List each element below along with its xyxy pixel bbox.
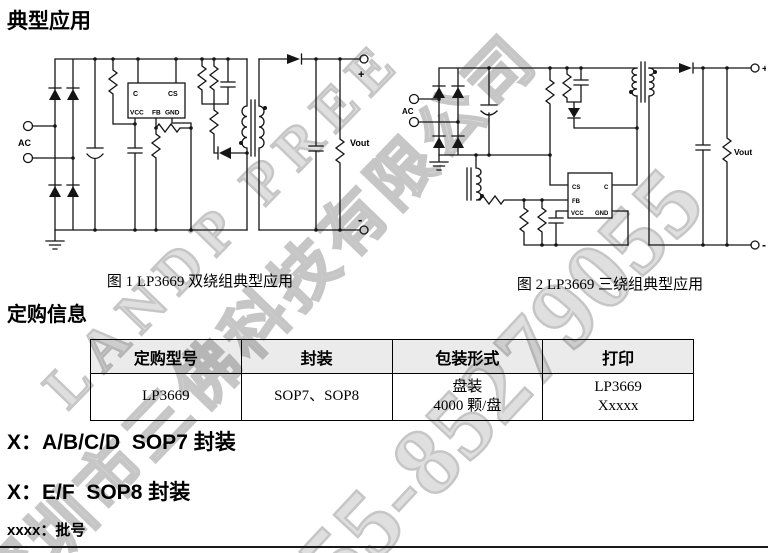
fig1-pin-fb: FB (152, 110, 161, 117)
ordering-table-row: LP3669 SOP7、SOP8 盘装 4000 颗/盘 LP3669 Xxxx… (91, 374, 694, 421)
fig1-minus-label: - (358, 212, 362, 227)
ordering-table-header-row: 定购型号 封装 包装形式 打印 (91, 340, 694, 374)
bottom-divider (0, 546, 768, 548)
fig2-pin-c: C (604, 185, 609, 191)
figure1-schematic: AC C CS VCC FB GND Vout + - (6, 36, 391, 258)
fig2-vout-label: Vout (734, 147, 752, 157)
marking-line-1: LP3669 (543, 378, 693, 398)
fig1-diodes-and-junctions (49, 54, 342, 232)
fig2-pin-vcc: VCC (571, 211, 584, 217)
cell-marking: LP3669 Xxxxx (543, 374, 694, 421)
col-header-packing-form: 包装形式 (392, 340, 543, 374)
fig1-pin-vcc: VCC (130, 110, 144, 117)
fig1-pin-c: C (133, 91, 138, 98)
note-sop7-codes: X：A/B/C/D SOP7 封装 (7, 426, 236, 456)
fig1-vout-label: Vout (350, 138, 369, 148)
fig2-pin-cs: CS (572, 185, 580, 191)
cell-order-model: LP3669 (91, 374, 242, 421)
section-title-typical-applications: 典型应用 (7, 5, 91, 35)
figure2-schematic: AC CS FB VCC C GND Vout + - (396, 50, 766, 265)
fig2-wiring (410, 62, 760, 249)
col-header-marking: 打印 (543, 340, 694, 374)
fig2-pin-gnd: GND (595, 211, 609, 217)
col-header-package: 封装 (241, 340, 392, 374)
datasheet-page: LANDP PREE 深圳市三佛科技有限公司 0755-85279055 典型应… (0, 0, 768, 553)
cell-packing-form: 盘装 4000 颗/盘 (392, 374, 543, 421)
note-sop8-codes: X：E/F SOP8 封装 (7, 476, 190, 506)
ordering-table: 定购型号 封装 包装形式 打印 LP3669 SOP7、SOP8 盘装 4000… (90, 339, 694, 421)
fig2-plus-label: + (762, 64, 766, 75)
cell-package: SOP7、SOP8 (241, 374, 392, 421)
fig1-ac-label: AC (18, 138, 31, 148)
fig2-minus-label: - (762, 238, 766, 252)
fig2-ac-label: AC (402, 107, 414, 116)
fig1-wiring (24, 54, 369, 249)
fig1-pin-cs: CS (168, 91, 178, 98)
col-header-order-model: 定购型号 (91, 340, 242, 374)
note-batch-number: xxxx：批号 (7, 519, 85, 540)
marking-line-2: Xxxxx (543, 397, 693, 417)
figure1-caption: 图 1 LP3669 双绕组典型应用 (50, 270, 350, 291)
packing-line-2: 4000 颗/盘 (393, 397, 543, 417)
section-title-ordering-info: 定购信息 (7, 298, 87, 327)
fig1-plus-label: + (358, 69, 364, 81)
fig2-pin-fb: FB (572, 199, 581, 205)
fig1-pin-gnd: GND (165, 110, 180, 117)
packing-line-1: 盘装 (393, 378, 543, 398)
figure2-caption: 图 2 LP3669 三绕组典型应用 (460, 273, 760, 294)
